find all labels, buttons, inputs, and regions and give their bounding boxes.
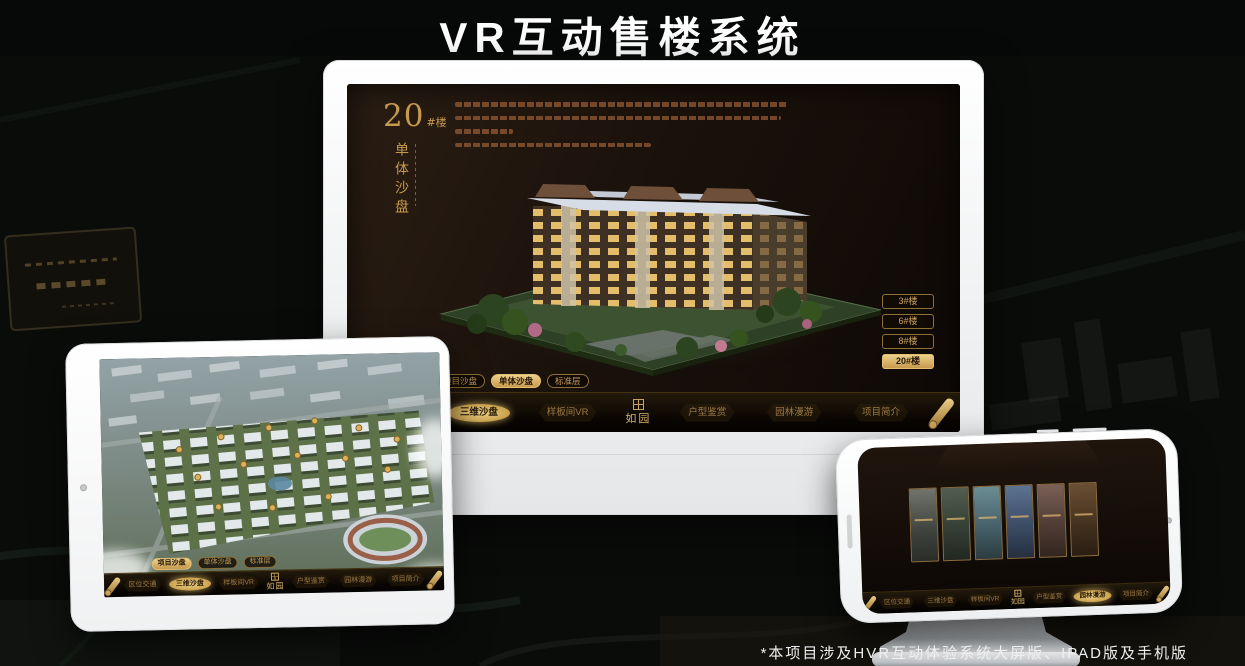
sub-tab-single-sandbox[interactable]: 单体沙盘 — [491, 374, 541, 388]
footnote-text: *本项目涉及HVR互动体验系统大屏版、IPAD版及手机版 — [761, 642, 1188, 663]
tablet-sub-tab-project-sandbox[interactable]: 项目沙盘 — [152, 557, 192, 570]
menu-item-unit-appreciation[interactable]: 户型鉴赏 — [676, 404, 738, 422]
tablet-camera-icon — [80, 484, 87, 491]
phone-scroll-right-icon[interactable] — [1156, 585, 1170, 602]
tablet-menu-item-showroom-vr[interactable]: 样板间VR — [216, 576, 261, 590]
background-plaque-decoration — [5, 228, 141, 331]
app-logo[interactable]: 如园 — [625, 399, 651, 426]
phone-menu-item-unit-appreciation[interactable]: 户型鉴赏 — [1030, 590, 1068, 603]
phone-menu-item-garden-roam[interactable]: 园林漫游 — [1073, 589, 1111, 602]
tablet-sub-tab-standard-floor[interactable]: 标准层 — [244, 556, 277, 569]
phone-menu-item-3d-sandbox[interactable]: 三维沙盘 — [921, 594, 959, 607]
phone-app-screen: 区位交通 三维沙盘 样板间VR 如园 户型鉴赏 园林漫游 项目简介 — [857, 438, 1171, 615]
vertical-caption-decoration — [415, 144, 416, 206]
tablet-logo-text: 如园 — [266, 581, 284, 592]
tablet-mockup: 项目沙盘 单体沙盘 标准层 区位交通 三维沙盘 样板间VR 如园 户型鉴赏 园林… — [65, 336, 455, 632]
tablet-app-screen: 项目沙盘 单体沙盘 标准层 区位交通 三维沙盘 样板间VR 如园 户型鉴赏 园林… — [99, 352, 444, 597]
gallery-panel-interior[interactable] — [1037, 483, 1068, 558]
phone-menu-item-project-intro[interactable]: 项目简介 — [1117, 587, 1155, 600]
menu-item-showroom-vr[interactable]: 样板间VR — [535, 404, 601, 422]
floor-button-6[interactable]: 6#楼 — [882, 314, 934, 329]
floor-button-20[interactable]: 20#楼 — [882, 354, 934, 369]
tablet-app-logo[interactable]: 如园 — [266, 573, 284, 592]
tablet-scroll-right-icon[interactable] — [427, 569, 444, 589]
sub-tab-standard-floor[interactable]: 标准层 — [547, 374, 589, 388]
menu-item-project-intro[interactable]: 项目简介 — [850, 404, 912, 422]
phone-menu-item-location-traffic[interactable]: 区位交通 — [878, 596, 916, 609]
building-3d-render[interactable] — [435, 142, 885, 380]
scroll-menu-icon[interactable] — [927, 396, 955, 428]
floor-button-8[interactable]: 8#楼 — [882, 334, 934, 349]
phone-mockup: 区位交通 三维沙盘 样板间VR 如园 户型鉴赏 园林漫游 项目简介 — [835, 428, 1183, 624]
phone-power-button — [1037, 429, 1059, 433]
desktop-sub-tabs: 项目沙盘 单体沙盘 标准层 — [435, 374, 589, 388]
logo-text: 如园 — [625, 410, 651, 426]
tablet-menu-item-location-traffic[interactable]: 区位交通 — [121, 578, 163, 592]
menu-item-garden-roam[interactable]: 园林漫游 — [763, 404, 825, 422]
page-canvas: VR互动售楼系统 20#楼 单体沙盘 — [0, 0, 1245, 666]
phone-app-logo[interactable]: 如园 — [1010, 589, 1025, 606]
phone-menu-bar: 区位交通 三维沙盘 样板间VR 如园 户型鉴赏 园林漫游 项目简介 — [862, 581, 1171, 614]
gallery-panel-building[interactable] — [1005, 484, 1036, 559]
floor-button-group: 3#楼 6#楼 8#楼 20#楼 — [882, 294, 934, 369]
tablet-menu-item-garden-roam[interactable]: 园林漫游 — [337, 574, 379, 588]
floor-heading-unit: #楼 — [426, 116, 446, 129]
gallery-panel-landscape[interactable] — [973, 485, 1004, 560]
gallery-panel-garden[interactable] — [941, 486, 972, 561]
phone-speaker-icon — [847, 514, 853, 548]
phone-volume-button — [1073, 428, 1107, 432]
tablet-menu-item-unit-appreciation[interactable]: 户型鉴赏 — [290, 575, 332, 589]
tablet-sub-tab-single-sandbox[interactable]: 单体沙盘 — [198, 556, 238, 569]
tablet-menu-item-project-intro[interactable]: 项目简介 — [384, 573, 426, 587]
phone-menu-item-showroom-vr[interactable]: 样板间VR — [965, 593, 1006, 606]
gallery-panel-row — [909, 482, 1099, 563]
gallery-panel-courtyard[interactable] — [909, 488, 940, 563]
floor-heading-subtitle: 单体沙盘 — [391, 142, 411, 218]
menu-item-3d-sandbox[interactable]: 三维沙盘 — [448, 404, 510, 422]
tablet-menu-item-3d-sandbox[interactable]: 三维沙盘 — [169, 577, 211, 591]
courtyard-pergola-decoration — [927, 440, 1108, 480]
page-title: VR互动售楼系统 — [0, 4, 1245, 65]
gallery-panel-study[interactable] — [1069, 482, 1100, 557]
logo-emblem-icon — [633, 399, 644, 410]
tablet-logo-emblem-icon — [271, 573, 279, 581]
phone-logo-text: 如园 — [1011, 596, 1025, 606]
floor-heading-number: 20 — [383, 98, 424, 134]
phone-scroll-left-icon[interactable] — [863, 595, 877, 612]
tablet-scroll-left-icon[interactable] — [105, 576, 122, 596]
floor-heading: 20#楼 — [383, 98, 447, 134]
floor-button-3[interactable]: 3#楼 — [882, 294, 934, 309]
